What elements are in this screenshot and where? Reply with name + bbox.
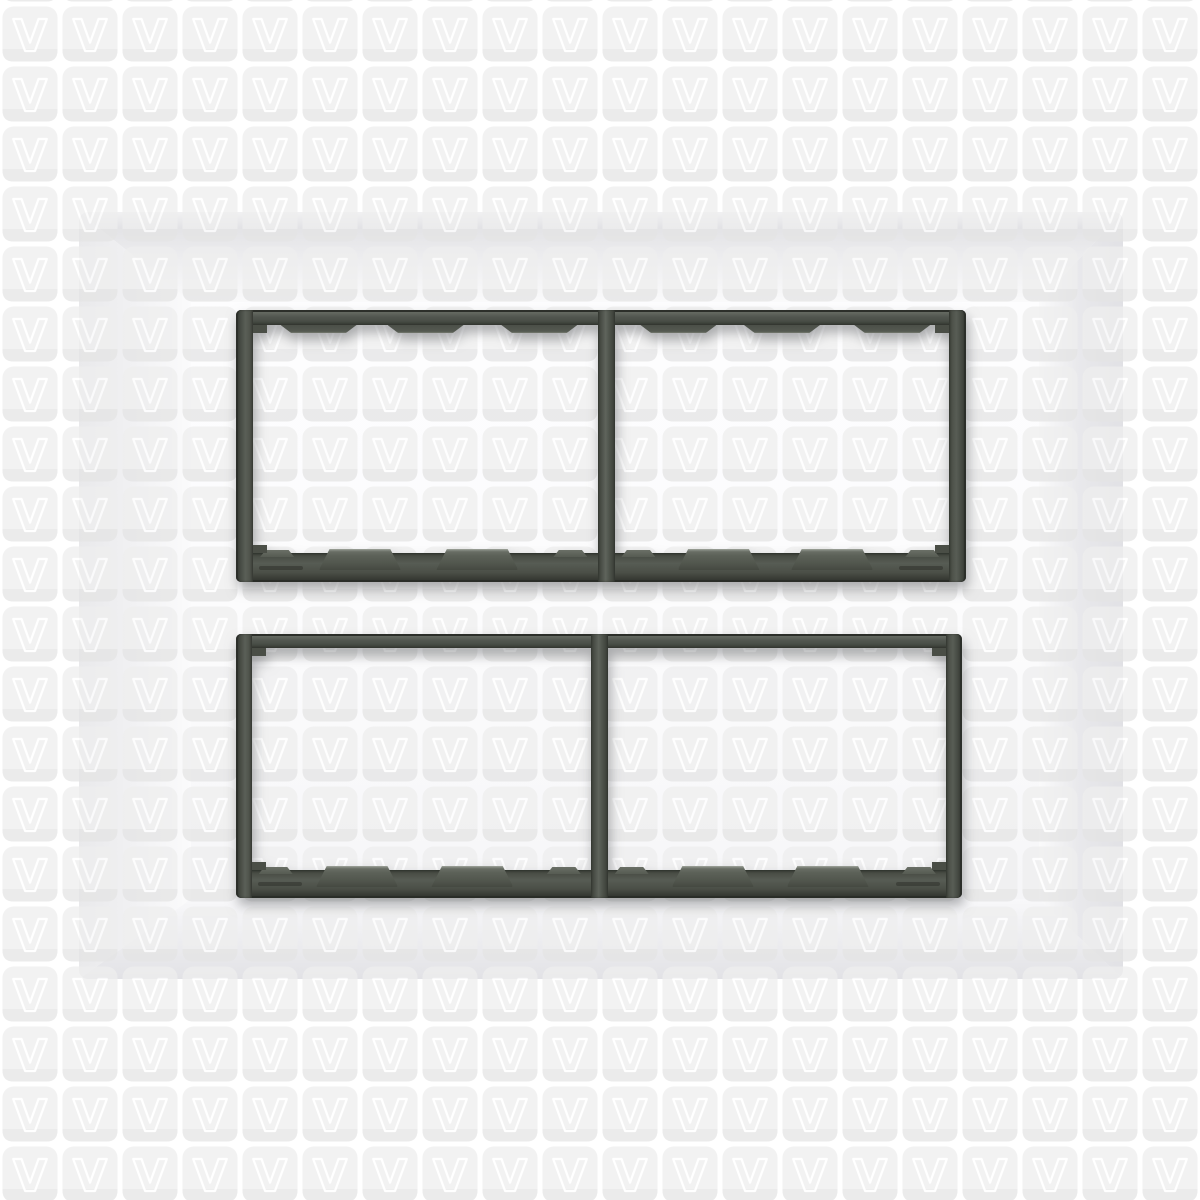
clip-tab-small [553, 550, 587, 557]
corner-step [252, 862, 266, 870]
groove-dash [899, 566, 943, 570]
clip-tab-small [621, 550, 655, 557]
plate-bevel-bottom [79, 899, 1123, 979]
frame-right-bar [949, 310, 966, 582]
frame-top-tab [640, 325, 716, 333]
module-clip-pad [316, 866, 398, 887]
product-photo-stage: V [0, 0, 1200, 1200]
corner-step [252, 648, 266, 656]
corner-step [932, 862, 946, 870]
corner-step [935, 325, 949, 333]
clip-tab-small [615, 867, 649, 874]
frame-top-tab [281, 325, 357, 333]
module-frame-bottom [236, 634, 962, 898]
module-clip-pad [791, 549, 873, 570]
clip-tab-small [547, 867, 581, 874]
plate-bevel-right [1039, 212, 1123, 979]
frame-top-tab [388, 325, 464, 333]
groove-dash [259, 566, 303, 570]
corner-step [932, 648, 946, 656]
frame-right-bar [946, 634, 962, 898]
plate-bevel-top [79, 212, 1123, 302]
module-clip-pad [431, 866, 513, 887]
plate-bevel-left [79, 212, 191, 979]
frame-center-divider [591, 634, 608, 898]
module-frame-top [236, 310, 966, 582]
module-clip-pad [436, 549, 518, 570]
frame-top-tab [854, 325, 930, 333]
frame-top-tab [744, 325, 820, 333]
groove-dash [258, 882, 302, 886]
clip-tab-small [902, 867, 936, 874]
corner-step [935, 545, 949, 553]
frame-left-bar [236, 634, 252, 898]
module-clip-pad [678, 549, 760, 570]
frame-top-tab [501, 325, 577, 333]
corner-step [253, 325, 267, 333]
module-clip-pad [787, 866, 869, 887]
frame-left-bar [236, 310, 253, 582]
frame-center-divider [598, 310, 615, 582]
corner-step [253, 545, 267, 553]
module-clip-pad [319, 549, 401, 570]
groove-dash [896, 882, 940, 886]
module-clip-pad [672, 866, 754, 887]
